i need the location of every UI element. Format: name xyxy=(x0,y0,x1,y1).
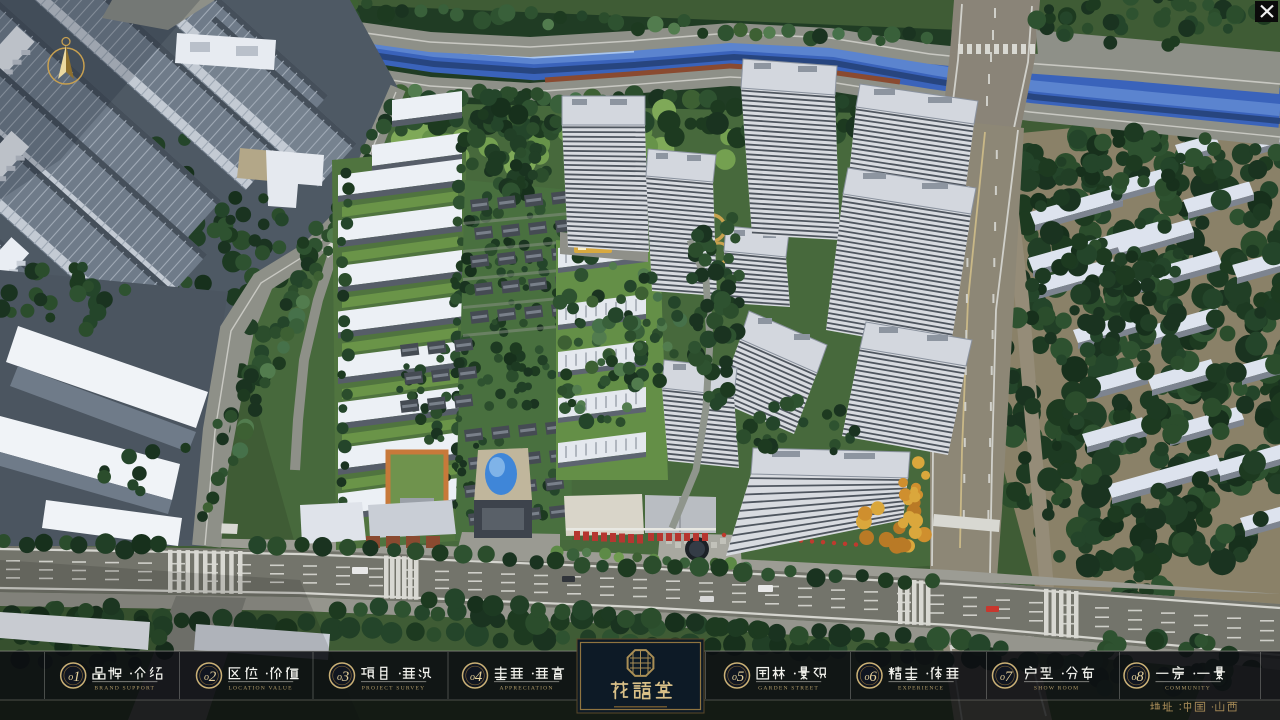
svg-text:EXPERIENCE: EXPERIENCE xyxy=(898,686,944,692)
svg-text:BRAND SUPPORT: BRAND SUPPORT xyxy=(94,686,155,692)
svg-text:8: 8 xyxy=(1136,669,1144,685)
svg-text:1: 1 xyxy=(73,669,81,685)
svg-text:5: 5 xyxy=(737,669,745,685)
svg-text:PROJECT SURVEY: PROJECT SURVEY xyxy=(362,686,426,692)
svg-text:6: 6 xyxy=(869,669,877,685)
svg-text:3: 3 xyxy=(341,669,350,685)
svg-text:4: 4 xyxy=(475,669,483,685)
svg-text:APPRECIATION: APPRECIATION xyxy=(499,686,553,692)
svg-text:GARDEN STREET: GARDEN STREET xyxy=(758,686,819,692)
svg-text:SHOW ROOM: SHOW ROOM xyxy=(1034,686,1079,692)
svg-text:LOCATION VALUE: LOCATION VALUE xyxy=(228,686,292,692)
svg-text:COMMUNITY: COMMUNITY xyxy=(1165,686,1211,692)
svg-text:2: 2 xyxy=(209,669,217,685)
